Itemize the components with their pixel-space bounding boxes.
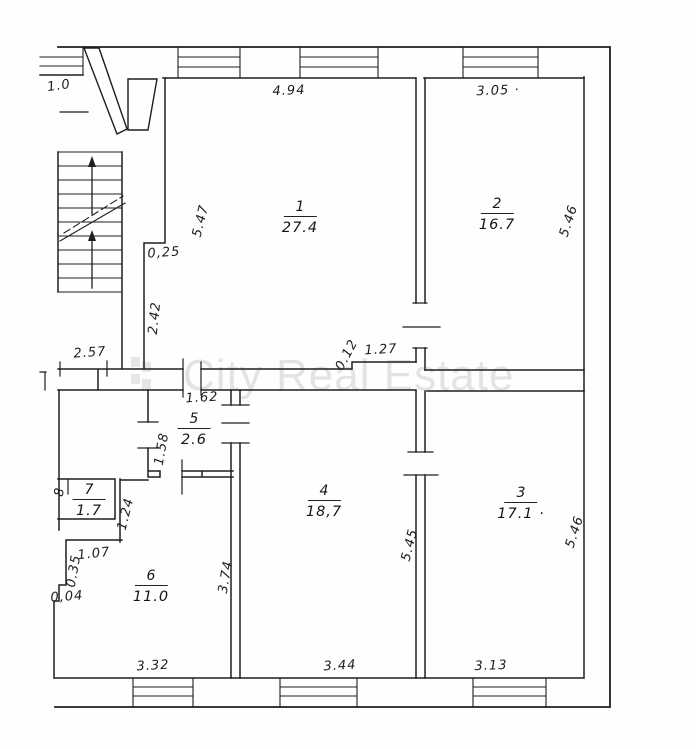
room-number: 7 [73, 483, 106, 500]
room-area: 17.1 · [497, 506, 545, 522]
dimension-label: 0,04 [50, 588, 84, 605]
floor-plan-drawing [0, 0, 696, 749]
room-area: 18,7 [306, 504, 342, 520]
outer-walls [55, 47, 610, 707]
room-number: 1 [284, 200, 317, 217]
room-label: 418,7 [306, 480, 342, 520]
room-number: 5 [178, 412, 211, 429]
divider-room1-room2 [416, 78, 425, 370]
staircase [58, 152, 125, 292]
room-area: 27.4 [282, 220, 318, 236]
room-number: 6 [135, 569, 168, 586]
room-label: 127.4 [282, 196, 318, 236]
dimension-label: 2.57 [73, 344, 107, 361]
room-area: 2.6 [178, 432, 211, 448]
room-area: 11.0 [133, 589, 169, 605]
room-label: 317.1 · [497, 482, 545, 522]
dimension-label: 3.44 [323, 658, 357, 675]
dimension-label: 1.27 [364, 342, 398, 359]
room-number: 2 [481, 197, 514, 214]
central-wall-band [58, 362, 584, 391]
windows [40, 47, 546, 707]
dimension-label: 3.13 [474, 658, 507, 674]
door-marks [138, 303, 440, 494]
dimension-label: 0,25 [147, 244, 181, 261]
dimension-label: 3.32 [136, 658, 170, 675]
room-area: 16.7 [479, 217, 515, 233]
room-number: 3 [505, 486, 538, 503]
dimension-label: 4.94 [272, 83, 305, 99]
dimension-label: 1.62 [185, 390, 219, 407]
room-label: 52.6 [178, 408, 211, 448]
room-label: 71.7 [73, 479, 106, 519]
tick-marks [40, 112, 107, 494]
room-label: 611.0 [133, 565, 169, 605]
floor-plan-scan: City Real Estate [0, 0, 696, 749]
room7-walls [54, 390, 148, 678]
dimension-label: 3.05 · [476, 83, 520, 99]
room-area: 1.7 [73, 503, 106, 519]
chimney-shapes [84, 48, 157, 134]
room-number: 4 [308, 484, 341, 501]
room-label: 216.7 [479, 193, 515, 233]
